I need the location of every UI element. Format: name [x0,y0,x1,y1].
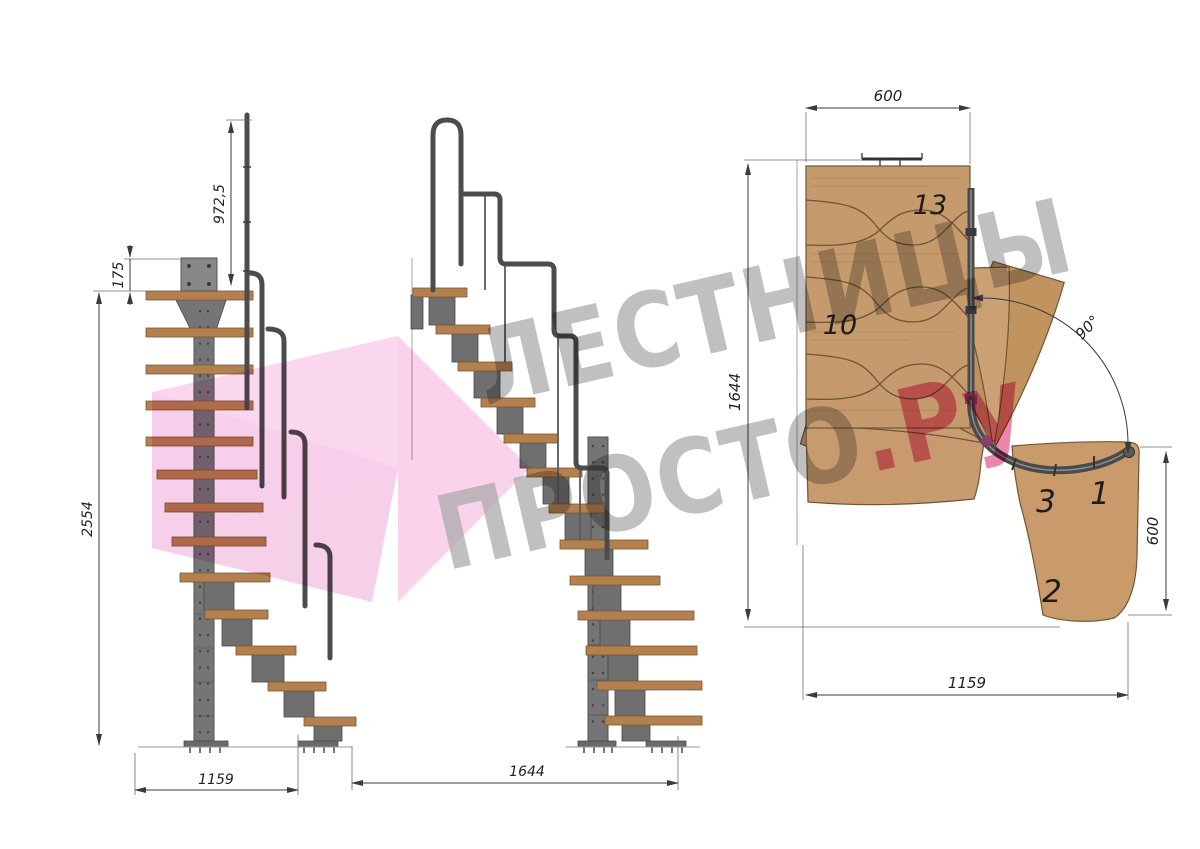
staircase-technical-drawing: 972,5 175 2554 1159 [0,0,1200,849]
dim-label-total-height: 2554 [80,501,96,537]
drawing-layer: 972,5 175 2554 1159 [0,0,1200,849]
dim-label-top-plate-offset: 175 [111,262,127,289]
dim-label-turn-angle: 90° [1072,312,1104,344]
step-number-1: 1 [1090,476,1110,512]
step-number-13: 13 [913,190,947,221]
left-elevation-view: 972,5 175 2554 1159 [80,115,356,795]
dim-label-middle-run-length: 1644 [509,764,545,780]
dim-label-plan-top-width: 600 [874,87,903,105]
middle-elevation-view: 1644 [352,120,702,790]
dim-label-handrail-height: 972,5 [212,184,228,224]
step-number-3: 3 [1036,484,1056,520]
plan-view: 90° 600 1644 600 1159 13 10 3 1 2 [726,87,1172,700]
dim-label-plan-entry-width: 600 [1144,517,1162,546]
step-number-10: 10 [823,310,857,341]
step-number-2: 2 [1042,574,1062,610]
dim-label-plan-bottom-length: 1159 [948,674,986,692]
dim-label-plan-flight-length: 1644 [726,373,744,411]
dim-label-left-run-length: 1159 [198,772,234,788]
